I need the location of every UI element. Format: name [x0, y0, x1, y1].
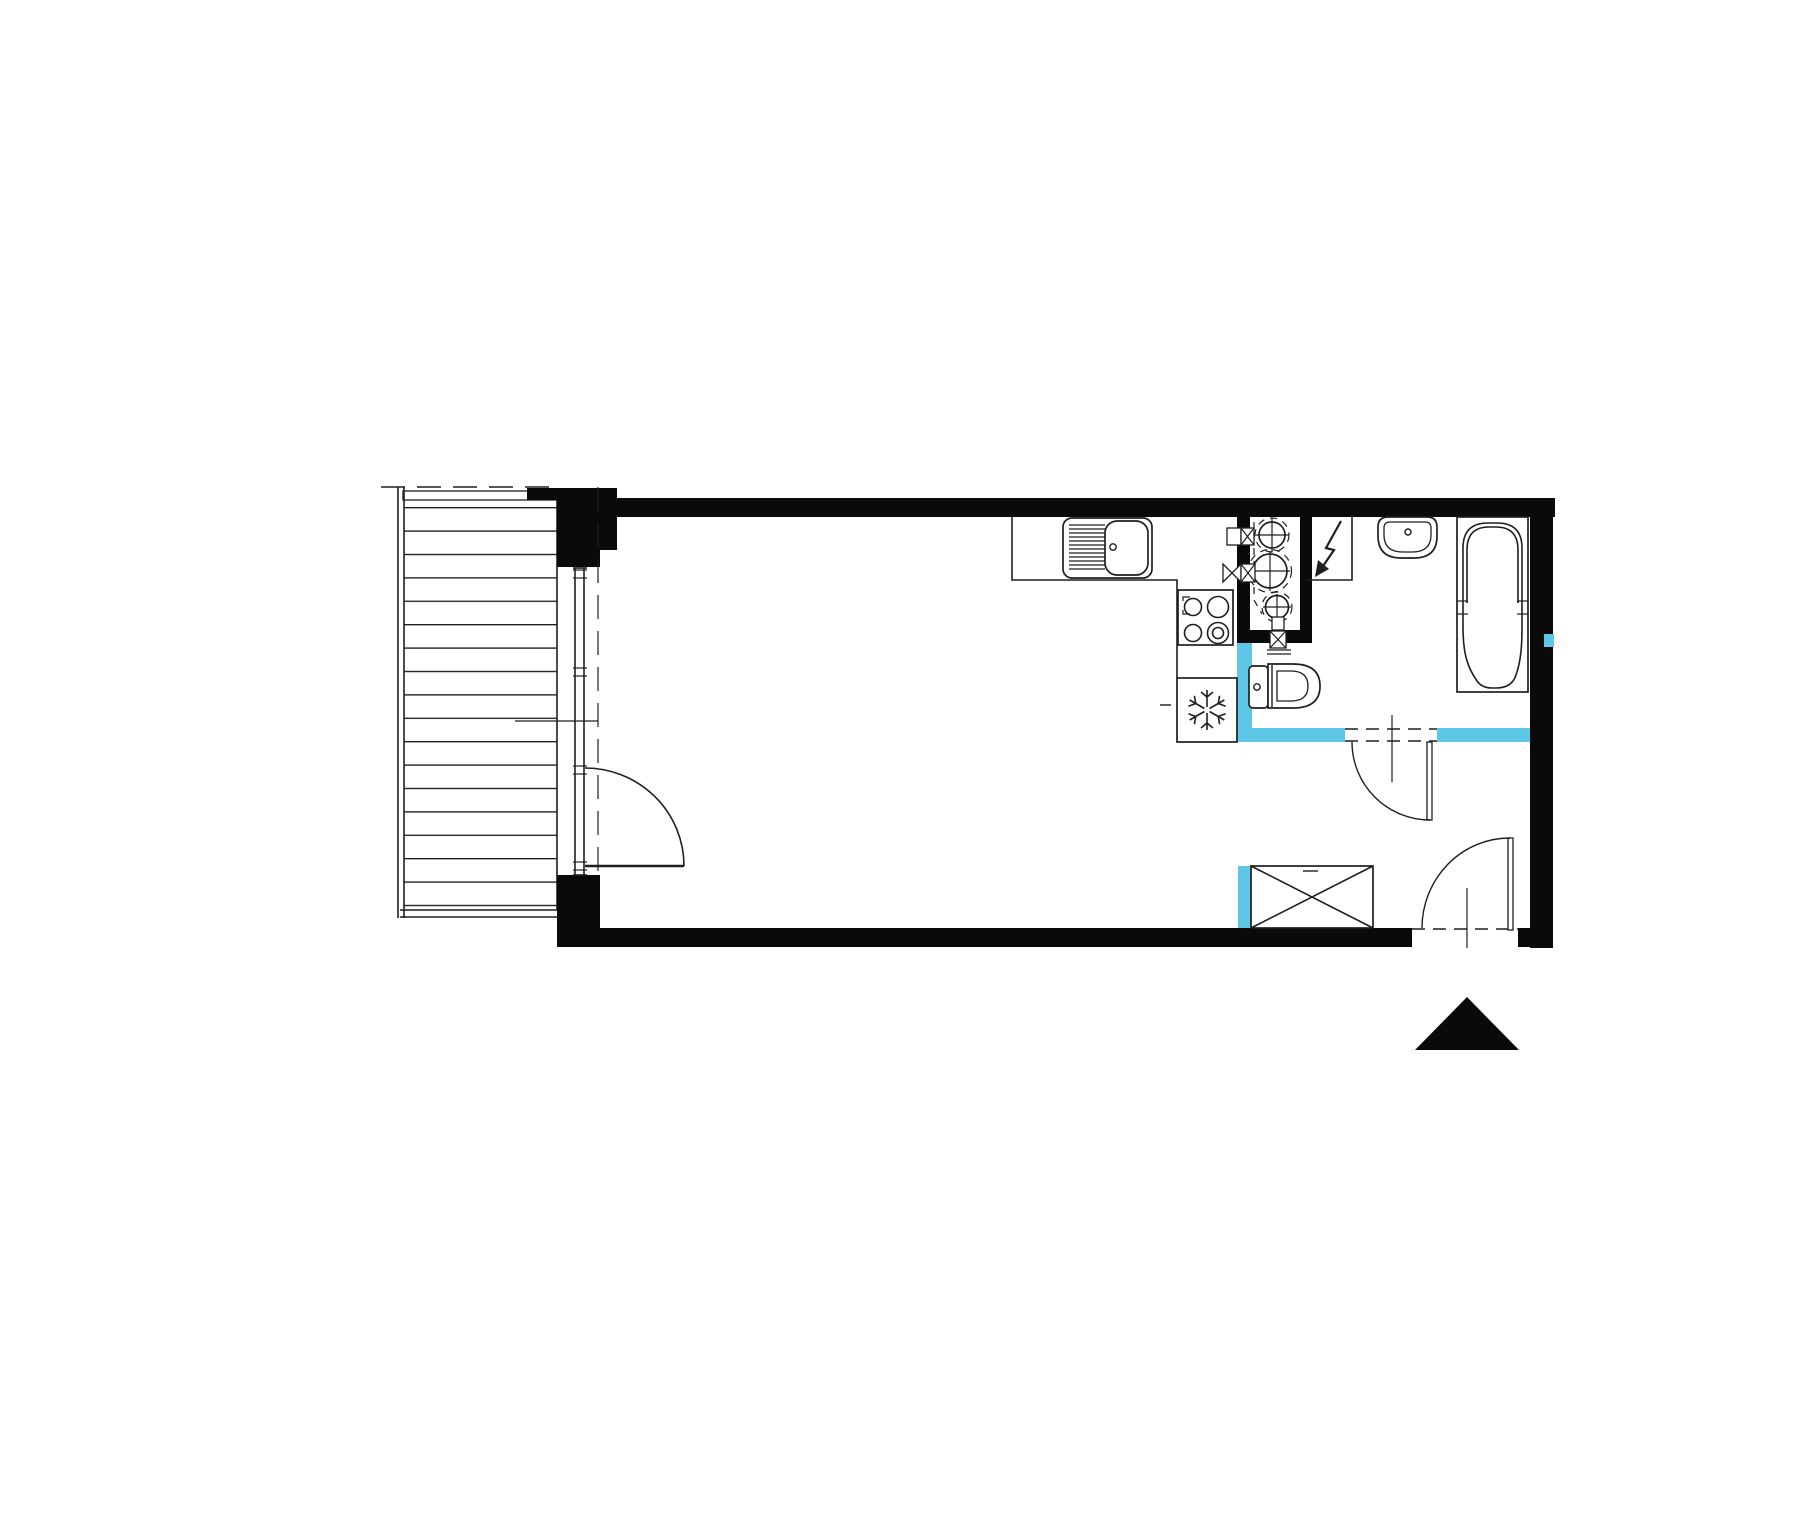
wall-top	[615, 498, 1555, 517]
washbasin	[1378, 517, 1437, 558]
partition-horizontal-right	[1437, 728, 1530, 742]
fridge	[1160, 678, 1237, 742]
kitchenette	[1012, 517, 1237, 742]
balcony-deck-hatch	[404, 500, 557, 910]
toilet-tank	[1249, 666, 1268, 708]
wall-corner-step	[527, 488, 557, 500]
toilet	[1249, 664, 1320, 708]
floor-plan-page	[0, 0, 1800, 1520]
sink-basin	[1105, 521, 1148, 575]
kitchen-sink	[1063, 518, 1152, 578]
wall-corner-foot	[557, 550, 600, 567]
wardrobe	[1251, 866, 1373, 928]
partition-wardrobe-cap	[1238, 866, 1251, 928]
bathroom-door	[1345, 715, 1437, 820]
bathroom-door-leaf	[1427, 742, 1432, 820]
floor-plan-canvas	[0, 0, 1800, 1520]
lightning-arrowhead	[1315, 560, 1329, 577]
wall-bottom	[557, 928, 1412, 947]
wall-corner-bottom-left	[557, 875, 600, 928]
bathroom-door-swing-arc	[1352, 742, 1430, 820]
shutoff-valve-upper	[1227, 528, 1254, 545]
entrance-door-leaf	[1508, 838, 1513, 930]
lightning-bolt-icon	[1321, 521, 1341, 569]
shutoff-valve-lower	[1223, 564, 1255, 582]
wall-corner-column	[557, 488, 617, 550]
water-meter-top	[1255, 518, 1289, 552]
electrical-panel	[1307, 517, 1352, 580]
partition-horizontal-left	[1237, 728, 1345, 742]
balcony-door-swing-arc	[585, 768, 684, 866]
north-arrow-icon	[1415, 997, 1519, 1050]
wall-bottom-stub	[1518, 928, 1553, 947]
entrance-door	[1412, 838, 1518, 948]
cooktop	[1178, 590, 1233, 645]
toilet-bowl-inner	[1277, 671, 1308, 701]
balcony-door	[585, 768, 684, 866]
wall-marker	[1544, 634, 1554, 647]
entrance-door-swing-arc	[1422, 838, 1510, 928]
bathtub	[1457, 517, 1528, 692]
wall-right	[1530, 498, 1553, 948]
